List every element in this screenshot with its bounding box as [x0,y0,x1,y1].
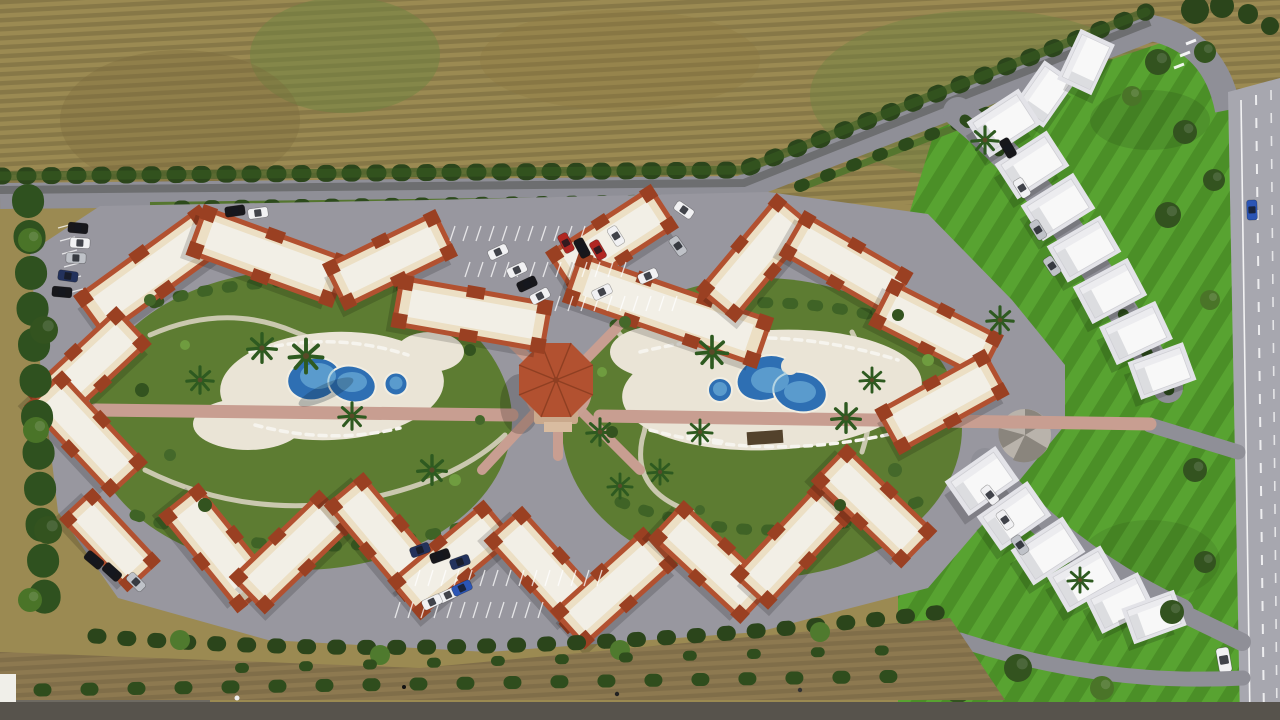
bush [464,344,476,356]
bush [144,294,156,306]
palm-tree [860,368,884,392]
bush [619,316,631,328]
tree [1004,654,1032,682]
bush [695,505,705,515]
bush [475,415,485,425]
car [1246,200,1257,220]
pergola [747,430,784,445]
tree [1194,551,1216,573]
corner-trees [1261,17,1279,35]
bush [180,340,190,350]
palm-tree [187,367,213,393]
gazebo-steps [544,422,572,432]
pedestrian [235,696,240,701]
tree [18,588,42,612]
tree [34,516,62,544]
palm-tree [608,474,632,498]
bush [834,499,846,511]
palm-tree [418,456,447,485]
bush [449,474,461,486]
scene-canvas [0,0,1280,720]
bush [135,383,149,397]
car [66,252,86,263]
tree [1145,49,1171,75]
main-footpath [600,416,1150,424]
tree [1173,120,1197,144]
left-tree-column [28,200,46,630]
tree [1160,600,1184,624]
field-brown-patch [480,10,760,110]
bush [597,367,607,377]
tree [23,417,49,443]
palm-tree [972,127,998,153]
bush [198,498,212,512]
palm-tree [697,337,728,368]
tree [1183,458,1207,482]
pedestrian [615,692,619,696]
palm-tree [987,307,1013,333]
tree [810,622,830,642]
main-footpath [95,410,512,415]
pool-highlight [390,377,403,390]
tree [1203,169,1225,191]
car [52,286,73,298]
palm-tree [290,340,323,373]
bush [164,449,176,461]
pool-highlight [713,382,727,396]
gazebo-finial [553,377,559,383]
palm-tree [339,403,365,429]
palm-tree [248,334,277,363]
bottom-road [0,702,1280,720]
bush [892,309,904,321]
aerial-render [0,0,1280,720]
tree [1200,290,1220,310]
corner-trees [1238,4,1258,24]
tree [1194,41,1216,63]
pedestrian [798,688,802,692]
pool-highlight [784,381,816,403]
bush [922,354,934,366]
car [70,237,91,248]
palm-tree [1068,568,1092,592]
tree [1090,676,1114,700]
pedestrian [402,685,406,689]
palm-tree [688,420,712,444]
white-wall [0,674,16,702]
palm-tree [832,404,861,433]
tree [30,316,58,344]
tree [170,630,190,650]
palm-tree [648,460,672,484]
tree [1122,86,1142,106]
car [68,222,89,234]
pool-highlight [751,367,789,393]
bush [606,426,618,438]
bush [888,463,902,477]
tree [18,228,42,252]
tree [1155,202,1181,228]
